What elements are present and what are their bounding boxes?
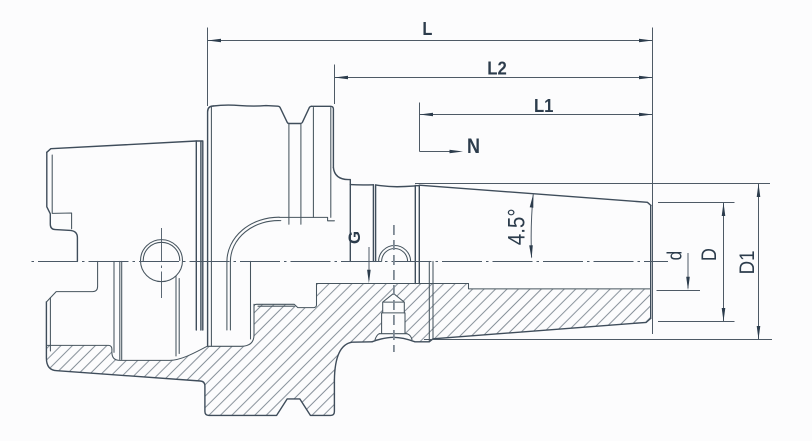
svg-text:L1: L1 [534,96,554,116]
svg-text:D1: D1 [736,250,759,274]
svg-text:G: G [345,231,364,244]
svg-text:d: d [664,251,687,261]
svg-text:L2: L2 [487,59,507,79]
svg-text:L: L [422,19,432,39]
svg-text:D: D [698,248,721,261]
svg-text:4.5°: 4.5° [503,208,530,245]
svg-text:N: N [467,134,480,158]
